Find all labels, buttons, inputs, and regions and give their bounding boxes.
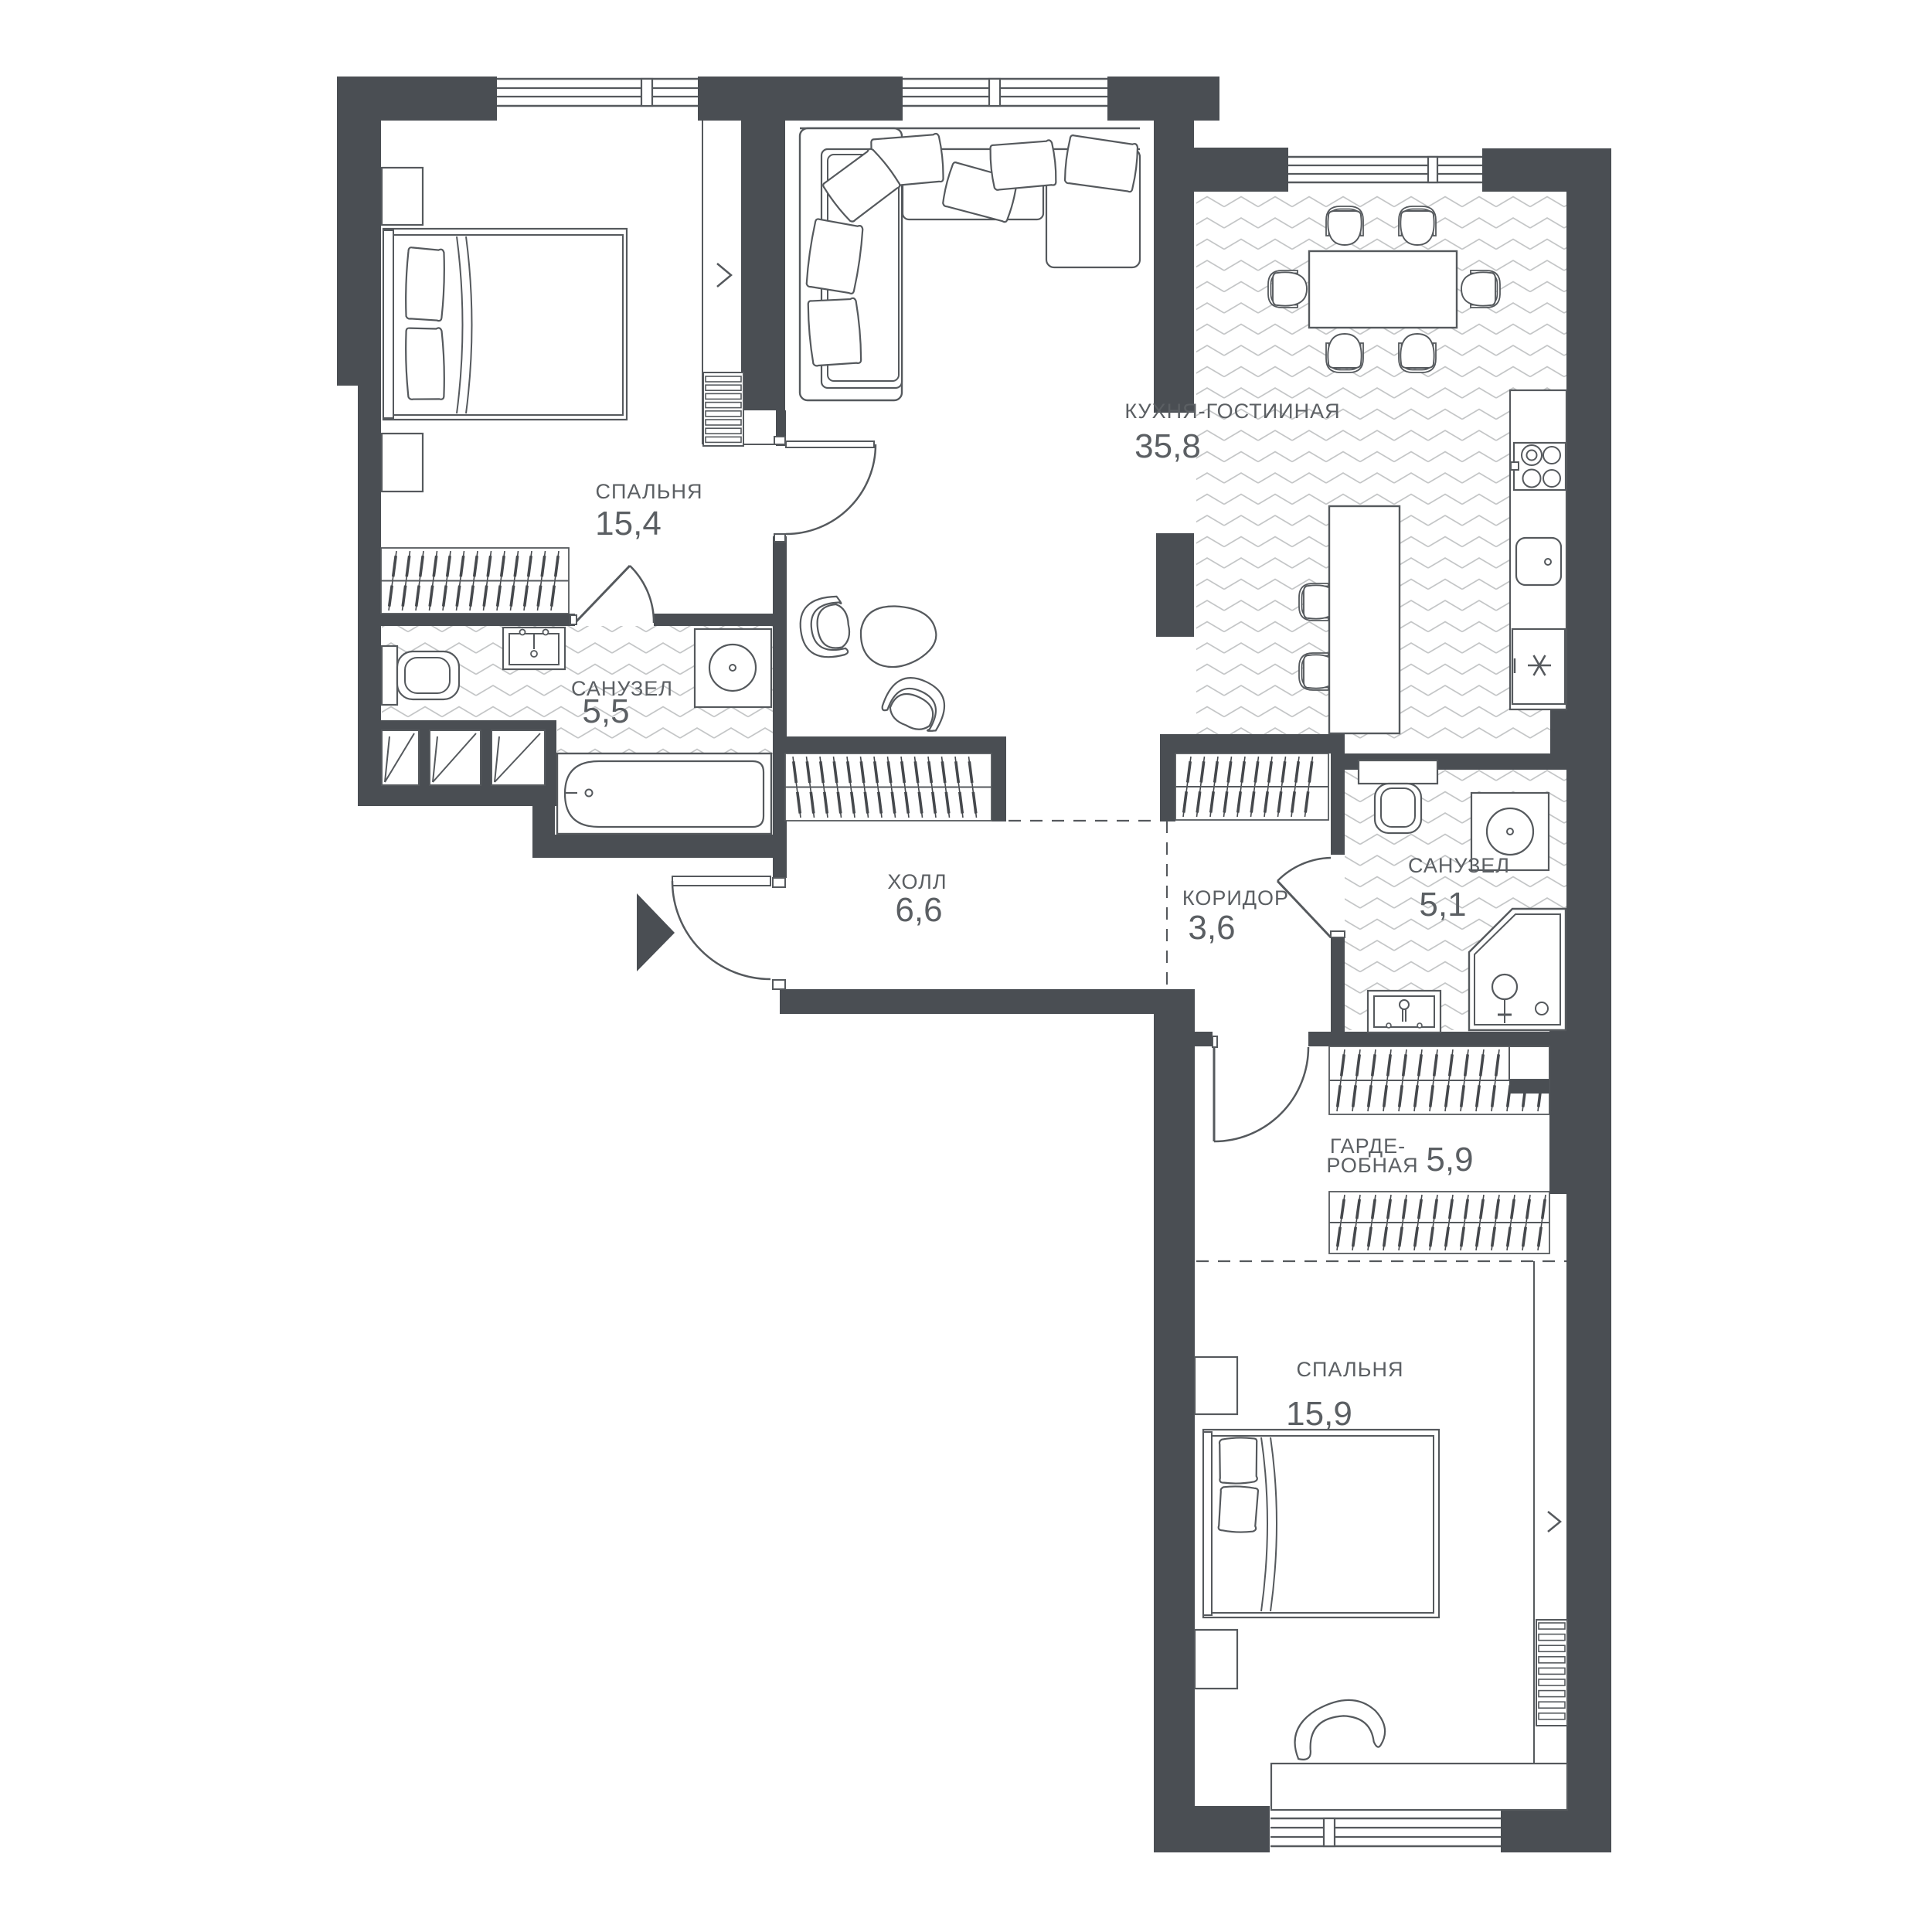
svg-text:РОБНАЯ: РОБНАЯ [1326, 1154, 1418, 1177]
svg-text:15,4: 15,4 [595, 505, 662, 543]
svg-text:6,6: 6,6 [895, 891, 942, 929]
svg-text:САНУЗЕЛ: САНУЗЕЛ [1408, 854, 1510, 877]
svg-text:3,6: 3,6 [1188, 909, 1235, 947]
svg-text:15,9: 15,9 [1286, 1395, 1352, 1433]
svg-text:КУХНЯ-ГОСТИИНАЯ: КУХНЯ-ГОСТИИНАЯ [1124, 400, 1340, 423]
svg-text:СПАЛЬНЯ: СПАЛЬНЯ [1297, 1358, 1404, 1381]
svg-text:СПАЛЬНЯ: СПАЛЬНЯ [596, 480, 703, 503]
svg-text:35,8: 35,8 [1134, 427, 1201, 465]
svg-text:КОРИДОР: КОРИДОР [1182, 886, 1289, 910]
svg-text:5,5: 5,5 [582, 692, 629, 730]
svg-text:5,9: 5,9 [1426, 1141, 1473, 1179]
svg-text:5,1: 5,1 [1419, 886, 1466, 923]
svg-text:ХОЛЛ: ХОЛЛ [887, 870, 947, 893]
